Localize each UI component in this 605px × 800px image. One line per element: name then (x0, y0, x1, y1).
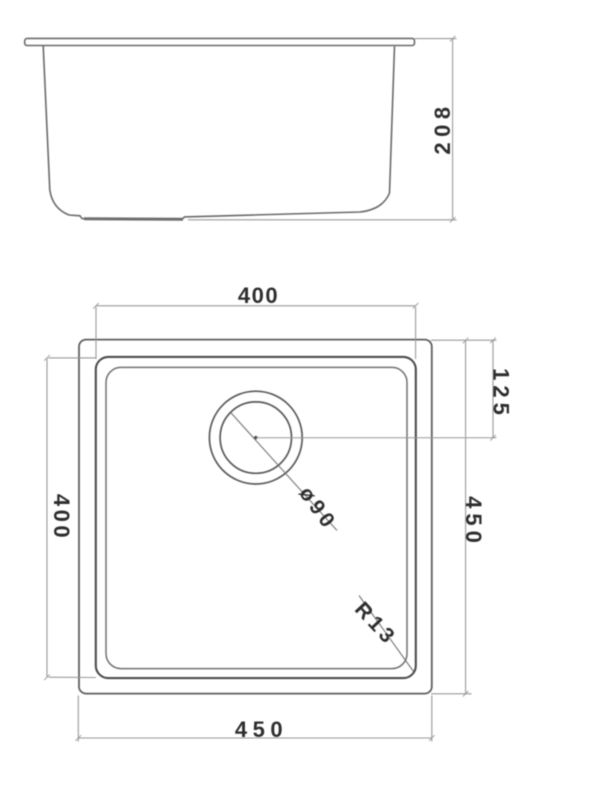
svg-text:125: 125 (489, 368, 514, 420)
svg-text:R13: R13 (350, 598, 401, 651)
svg-text:400: 400 (238, 283, 279, 308)
svg-text:400: 400 (49, 494, 74, 541)
svg-text:450: 450 (461, 496, 486, 548)
svg-text:208: 208 (430, 101, 455, 154)
svg-text:450: 450 (235, 717, 288, 742)
